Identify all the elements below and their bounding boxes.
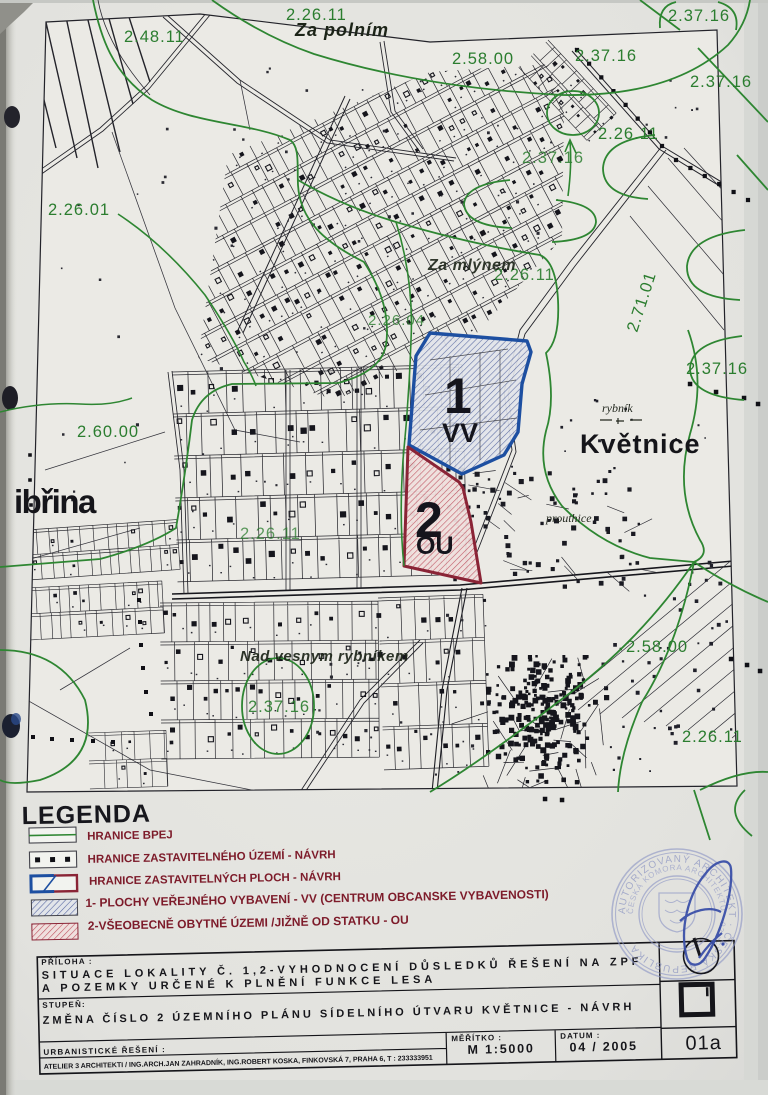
svg-text:1: 1: [444, 368, 472, 424]
svg-text:2.26.11: 2.26.11: [240, 525, 301, 543]
svg-text:2.26.04: 2.26.04: [368, 312, 425, 329]
svg-text:2.26.11: 2.26.11: [598, 125, 659, 143]
svg-text:2.37.16: 2.37.16: [248, 698, 310, 716]
svg-text:2.60.00: 2.60.00: [77, 423, 139, 441]
svg-text:Květnice: Květnice: [580, 429, 701, 459]
svg-text:2.26.11: 2.26.11: [682, 728, 743, 746]
svg-text:prouthice: prouthice: [545, 511, 592, 525]
svg-text:04 / 2005: 04 / 2005: [569, 1039, 638, 1055]
svg-text:2.37.16: 2.37.16: [668, 7, 730, 25]
svg-text:M 1:5000: M 1:5000: [467, 1041, 535, 1057]
svg-text:ibřina: ibřina: [14, 483, 97, 520]
svg-text:Nad vesnym rybníkem: Nad vesnym rybníkem: [240, 648, 409, 665]
svg-text:01a: 01a: [685, 1032, 722, 1055]
svg-text:2.48.11: 2.48.11: [124, 28, 185, 46]
svg-text:2.26.01: 2.26.01: [48, 201, 110, 219]
svg-text:LEGENDA: LEGENDA: [21, 800, 151, 830]
svg-text:rybník: rybník: [602, 401, 633, 415]
svg-text:2.37.16: 2.37.16: [690, 73, 752, 91]
svg-text:VV: VV: [442, 418, 478, 448]
svg-text:Za mlýnem: Za mlýnem: [427, 257, 516, 274]
svg-text:2.58.00: 2.58.00: [452, 50, 514, 68]
svg-text:2.37.16: 2.37.16: [686, 360, 748, 378]
svg-text:2.37.16: 2.37.16: [575, 47, 637, 65]
svg-text:STUPEŇ:: STUPEŇ:: [42, 1000, 86, 1010]
svg-text:PŘÍLOHA :: PŘÍLOHA :: [41, 957, 93, 967]
svg-text:2.37.16: 2.37.16: [522, 149, 584, 167]
svg-text:Za polním: Za polním: [294, 20, 389, 40]
svg-text:OU: OU: [416, 532, 454, 560]
svg-text:HRANICE BPEJ: HRANICE BPEJ: [87, 829, 173, 843]
svg-text:2.58.00: 2.58.00: [626, 638, 688, 656]
